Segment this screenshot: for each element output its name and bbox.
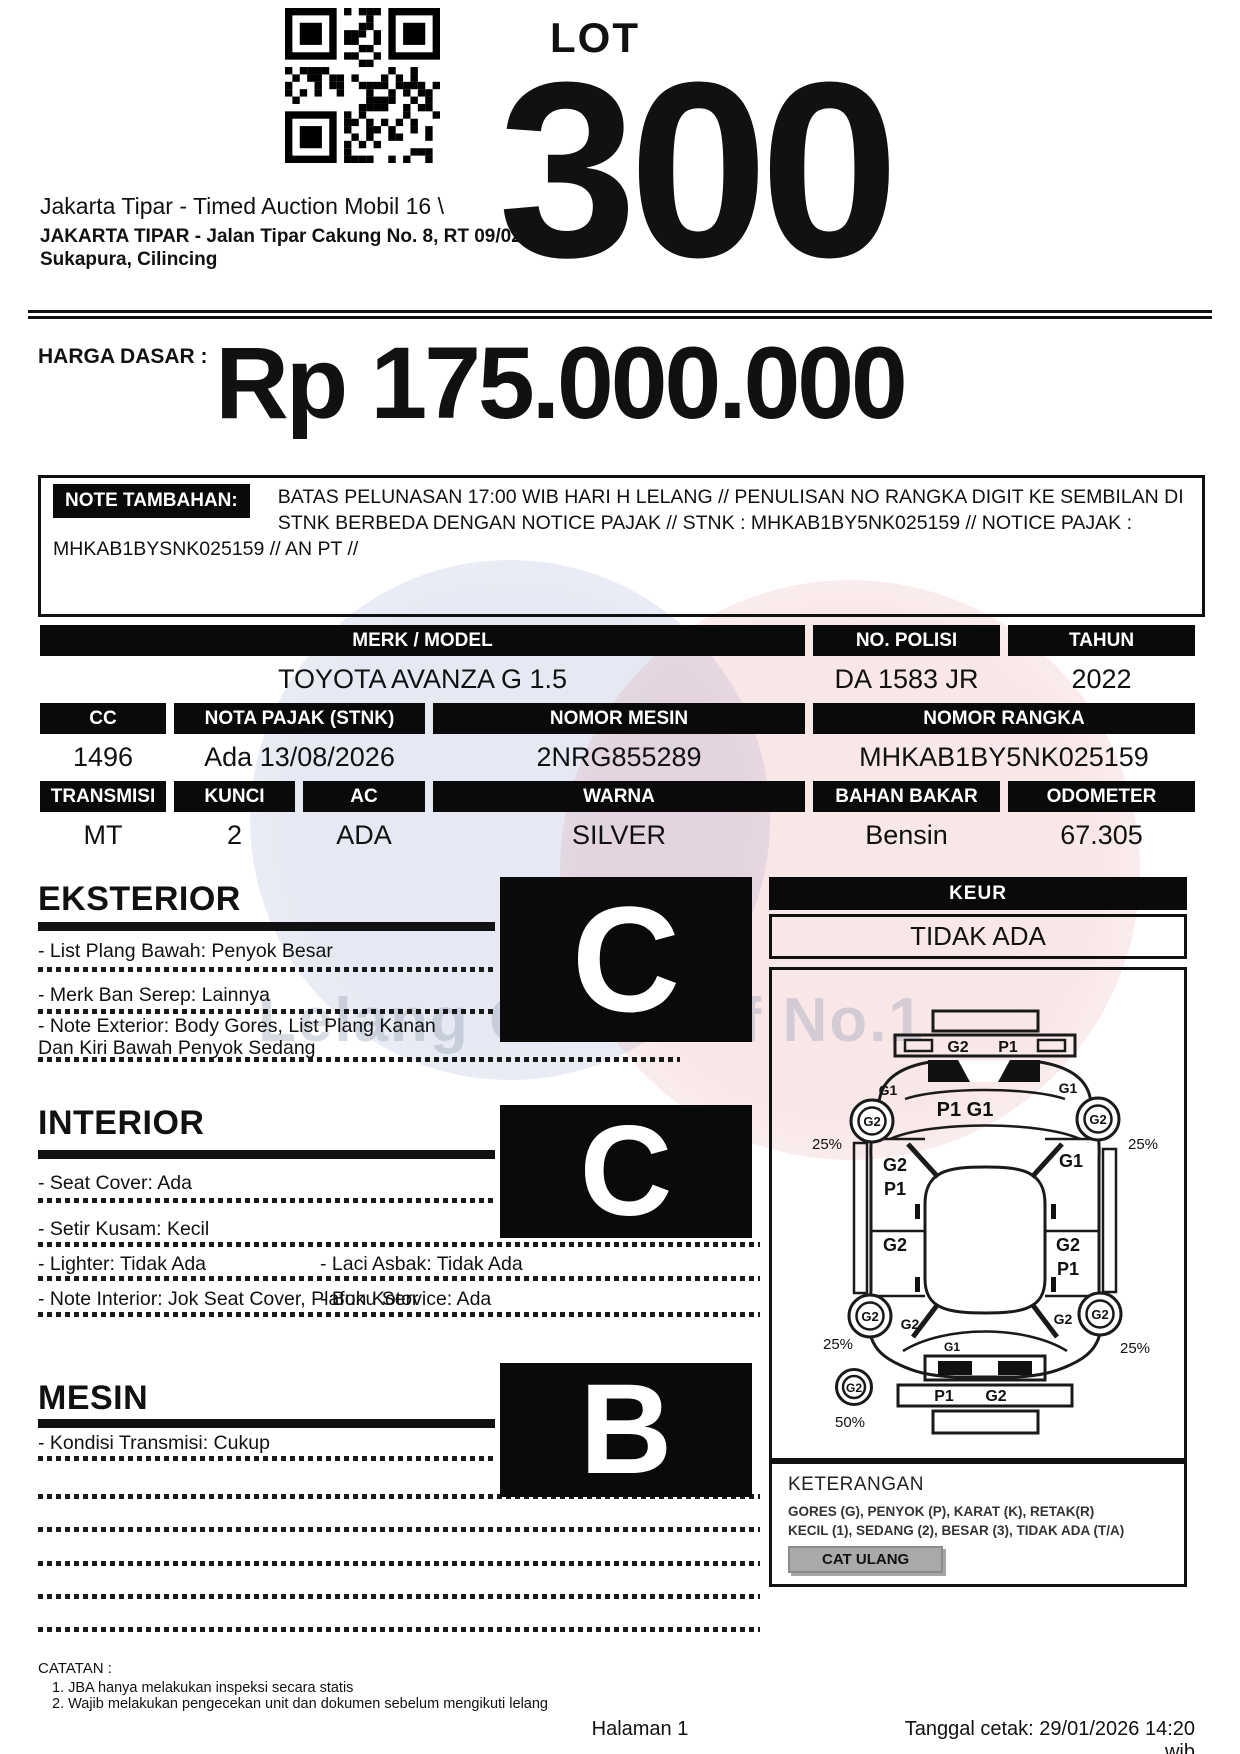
mesin-rule	[38, 1419, 495, 1428]
spare-wheel-label: G2	[846, 1381, 862, 1395]
warna-header: WARNA	[433, 781, 805, 812]
rear-left-wheel-pct: 25%	[812, 1136, 842, 1153]
keur-value: TIDAK ADA	[769, 914, 1187, 959]
eksterior-grade-badge: C	[500, 877, 752, 1042]
rear-left-fender-label: G1	[879, 1082, 898, 1098]
catatan-title: CATATAN :	[38, 1660, 112, 1677]
dotted-line	[38, 1242, 760, 1247]
nota-pajak-value: Ada 13/08/2026	[174, 734, 425, 781]
additional-note-box: NOTE TAMBAHAN: BATAS PELUNASAN 17:00 WIB…	[38, 475, 1205, 617]
catatan-item: 1. JBA hanya melakukan inspeksi secara s…	[52, 1680, 353, 1696]
rear-right-wheel-pct: 25%	[1128, 1136, 1158, 1153]
kunci-header: KUNCI	[174, 781, 295, 812]
odometer-header: ODOMETER	[1008, 781, 1195, 812]
note-label: NOTE TAMBAHAN:	[53, 484, 250, 518]
odometer-value: 67.305	[1008, 812, 1195, 859]
transmisi-value: MT	[40, 812, 166, 859]
front-bumper-g2-label: G2	[985, 1388, 1006, 1405]
no-polisi-value: DA 1583 JR	[813, 656, 1000, 703]
ac-value: ADA	[303, 812, 425, 859]
transmisi-header: TRANSMISI	[40, 781, 166, 812]
front-left-wheel-pct: 25%	[823, 1336, 853, 1353]
front-right-wheel-pct: 25%	[1120, 1340, 1150, 1357]
interior-item: - Seat Cover: Ada	[38, 1172, 192, 1194]
dotted-line	[38, 1312, 760, 1317]
bahan-bakar-value: Bensin	[813, 812, 1000, 859]
nomor-rangka-value: MHKAB1BY5NK025159	[813, 734, 1195, 781]
rear-right-fender-label: G1	[1059, 1080, 1078, 1096]
spare-wheel-pct: 50%	[835, 1414, 865, 1431]
merk-model-value: TOYOTA AVANZA G 1.5	[40, 656, 805, 703]
ac-header: AC	[303, 781, 425, 812]
keterangan-box: KETERANGAN GORES (G), PENYOK (P), KARAT …	[769, 1461, 1187, 1587]
interior-grade-badge: C	[500, 1105, 752, 1238]
interior-item: - Setir Kusam: Kecil	[38, 1218, 209, 1240]
merk-model-header: MERK / MODEL	[40, 625, 805, 656]
no-polisi-header: NO. POLISI	[813, 625, 1000, 656]
cc-value: 1496	[40, 734, 166, 781]
interior-rule	[38, 1150, 495, 1159]
left-rear-door-label-1: G2	[883, 1155, 907, 1175]
dotted-line	[38, 1627, 760, 1632]
catatan-item: 2. Wajib melakukan pengecekan unit dan d…	[52, 1696, 548, 1712]
nota-pajak-header: NOTA PAJAK (STNK)	[174, 703, 425, 734]
rear-bumper-p1-label: P1	[998, 1039, 1018, 1056]
front-right-wheel-side-label: G2	[1054, 1311, 1073, 1327]
venue-address-line2: Sukapura, Cilincing	[40, 248, 527, 271]
venue-address-line1: JAKARTA TIPAR - Jalan Tipar Cakung No. 8…	[40, 225, 527, 248]
spec-table: MERK / MODEL NO. POLISI TAHUN TOYOTA AVA…	[40, 625, 1195, 859]
dotted-line	[38, 1057, 680, 1062]
tahun-header: TAHUN	[1008, 625, 1195, 656]
dotted-line	[38, 1561, 760, 1566]
left-rear-door-label-2: P1	[884, 1179, 906, 1199]
mesin-title: MESIN	[38, 1379, 148, 1418]
page-number: Halaman 1	[560, 1718, 720, 1741]
eksterior-title: EKSTERIOR	[38, 880, 241, 919]
nomor-mesin-header: NOMOR MESIN	[433, 703, 805, 734]
auction-lot-sheet: Lelang Otomotif No.1 LOT 300 Jakarta Tip…	[0, 0, 1240, 1754]
qr-code	[285, 8, 440, 163]
rear-right-wheel-label: G2	[1089, 1112, 1106, 1127]
dotted-line	[38, 1527, 760, 1532]
keterangan-title: KETERANGAN	[788, 1474, 1168, 1496]
bahan-bakar-header: BAHAN BAKAR	[813, 781, 1000, 812]
keterangan-legend-damage: GORES (G), PENYOK (P), KARAT (K), RETAK(…	[788, 1504, 1168, 1519]
mesin-item: - Kondisi Transmisi: Cukup	[38, 1432, 270, 1454]
rear-bumper-g2-label: G2	[947, 1039, 968, 1056]
auction-title: Jakarta Tipar - Timed Auction Mobil 16 \	[40, 192, 527, 220]
hood-edge-label: G1	[944, 1340, 960, 1354]
header-divider	[28, 310, 1212, 319]
right-front-door-label-2: P1	[1057, 1259, 1079, 1279]
eksterior-item: - Note Exterior: Body Gores, List Plang …	[38, 1015, 436, 1059]
tahun-value: 2022	[1008, 656, 1195, 703]
nomor-mesin-value: 2NRG855289	[433, 734, 805, 781]
dotted-line	[38, 967, 495, 972]
left-front-door-label: G2	[883, 1235, 907, 1255]
car-damage-diagram: G2 P1 G1 G1 G2 G2 25% 25% P1 G1 G2 P1 G2…	[769, 967, 1187, 1461]
front-bumper-p1-label: P1	[934, 1388, 954, 1405]
front-left-wheel-side-label: G2	[901, 1316, 920, 1332]
keur-header: KEUR	[769, 877, 1187, 910]
dotted-line	[38, 1456, 495, 1461]
nomor-rangka-header: NOMOR RANGKA	[813, 703, 1195, 734]
warna-value: SILVER	[433, 812, 805, 859]
eksterior-item: - Merk Ban Serep: Lainnya	[38, 984, 270, 1006]
print-date: Tanggal cetak: 29/01/2026 14:20 wib	[875, 1718, 1195, 1754]
front-left-wheel-label: G2	[861, 1309, 878, 1324]
auction-venue-block: Jakarta Tipar - Timed Auction Mobil 16 \…	[40, 192, 527, 271]
cc-header: CC	[40, 703, 166, 734]
base-price-value: Rp 175.000.000	[150, 330, 970, 437]
keterangan-legend-size: KECIL (1), SEDANG (2), BESAR (3), TIDAK …	[788, 1523, 1168, 1538]
eksterior-item: - List Plang Bawah: Penyok Besar	[38, 940, 333, 962]
lot-number: 300	[498, 45, 891, 295]
interior-item: - Buku Service: Ada	[320, 1288, 491, 1310]
cat-ulang-badge: CAT ULANG	[788, 1546, 943, 1573]
dotted-line	[38, 1276, 760, 1281]
kunci-value: 2	[174, 812, 295, 859]
dotted-line	[38, 1198, 495, 1203]
front-right-wheel-label: G2	[1091, 1307, 1108, 1322]
tailgate-label: P1 G1	[937, 1099, 994, 1121]
mesin-grade-badge: B	[500, 1363, 752, 1497]
eksterior-rule	[38, 922, 495, 931]
car-top-view: G2 P1 G1 G1 G2 G2 25% 25% P1 G1 G2 P1 G2…	[772, 970, 1184, 1458]
rear-left-wheel-label: G2	[863, 1114, 880, 1129]
interior-item: - Lighter: Tidak Ada	[38, 1253, 206, 1275]
dotted-line	[38, 1009, 495, 1014]
right-rear-door-label: G1	[1059, 1151, 1083, 1171]
right-front-door-label-1: G2	[1056, 1235, 1080, 1255]
interior-title: INTERIOR	[38, 1104, 204, 1143]
dotted-line	[38, 1594, 760, 1599]
interior-item: - Laci Asbak: Tidak Ada	[320, 1253, 523, 1275]
